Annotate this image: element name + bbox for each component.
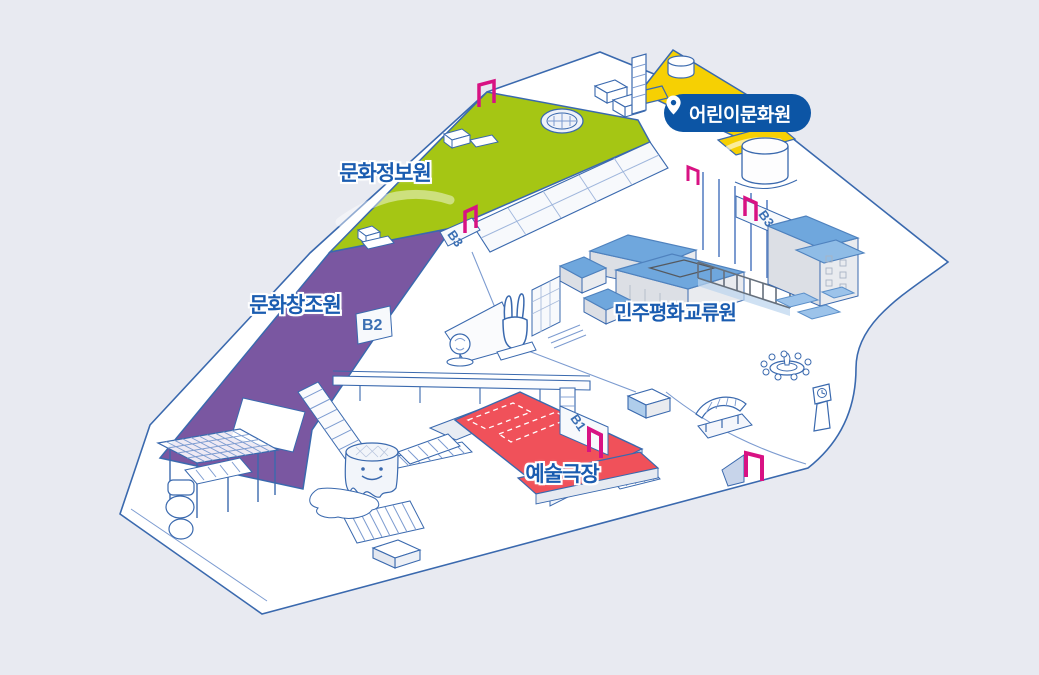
location-badge-label: 어린이문화원 <box>689 100 791 127</box>
floor-marker-b2: B2 <box>362 317 382 335</box>
ladder-tower <box>632 54 646 114</box>
stacked-stones <box>166 480 194 539</box>
label-culture-creation-center: 문화창조원 <box>249 289 341 319</box>
isometric-map-illustration <box>0 0 1039 675</box>
label-culture-information-center: 문화정보원 <box>339 157 431 187</box>
label-arts-theater: 예술극장 <box>525 458 598 488</box>
label-democracy-peace-exchange-center: 민주평화교류원 <box>614 297 736 326</box>
roof-skylight <box>541 109 583 133</box>
facility-map: 문화정보원 문화창조원 민주평화교류원 예술극장 B3 B3 B2 B1 어린이… <box>0 0 1039 675</box>
location-badge-childrens-culture-center[interactable]: 어린이문화원 <box>664 94 811 132</box>
